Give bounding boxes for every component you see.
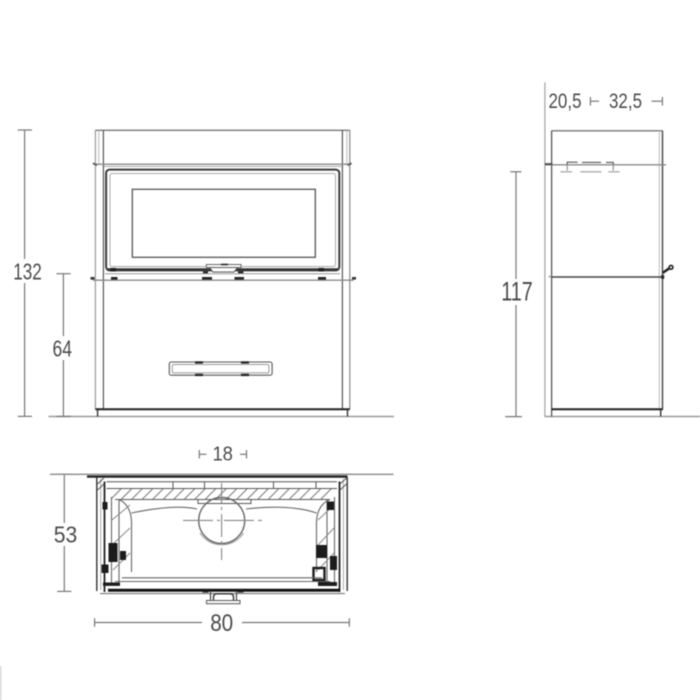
svg-text:32,5: 32,5	[609, 90, 642, 113]
svg-text:18: 18	[212, 444, 233, 466]
svg-text:20,5: 20,5	[549, 90, 582, 113]
svg-text:132: 132	[13, 259, 42, 285]
svg-text:80: 80	[210, 610, 233, 637]
svg-text:53: 53	[54, 522, 78, 548]
svg-text:117: 117	[501, 277, 533, 307]
svg-text:64: 64	[53, 336, 73, 362]
